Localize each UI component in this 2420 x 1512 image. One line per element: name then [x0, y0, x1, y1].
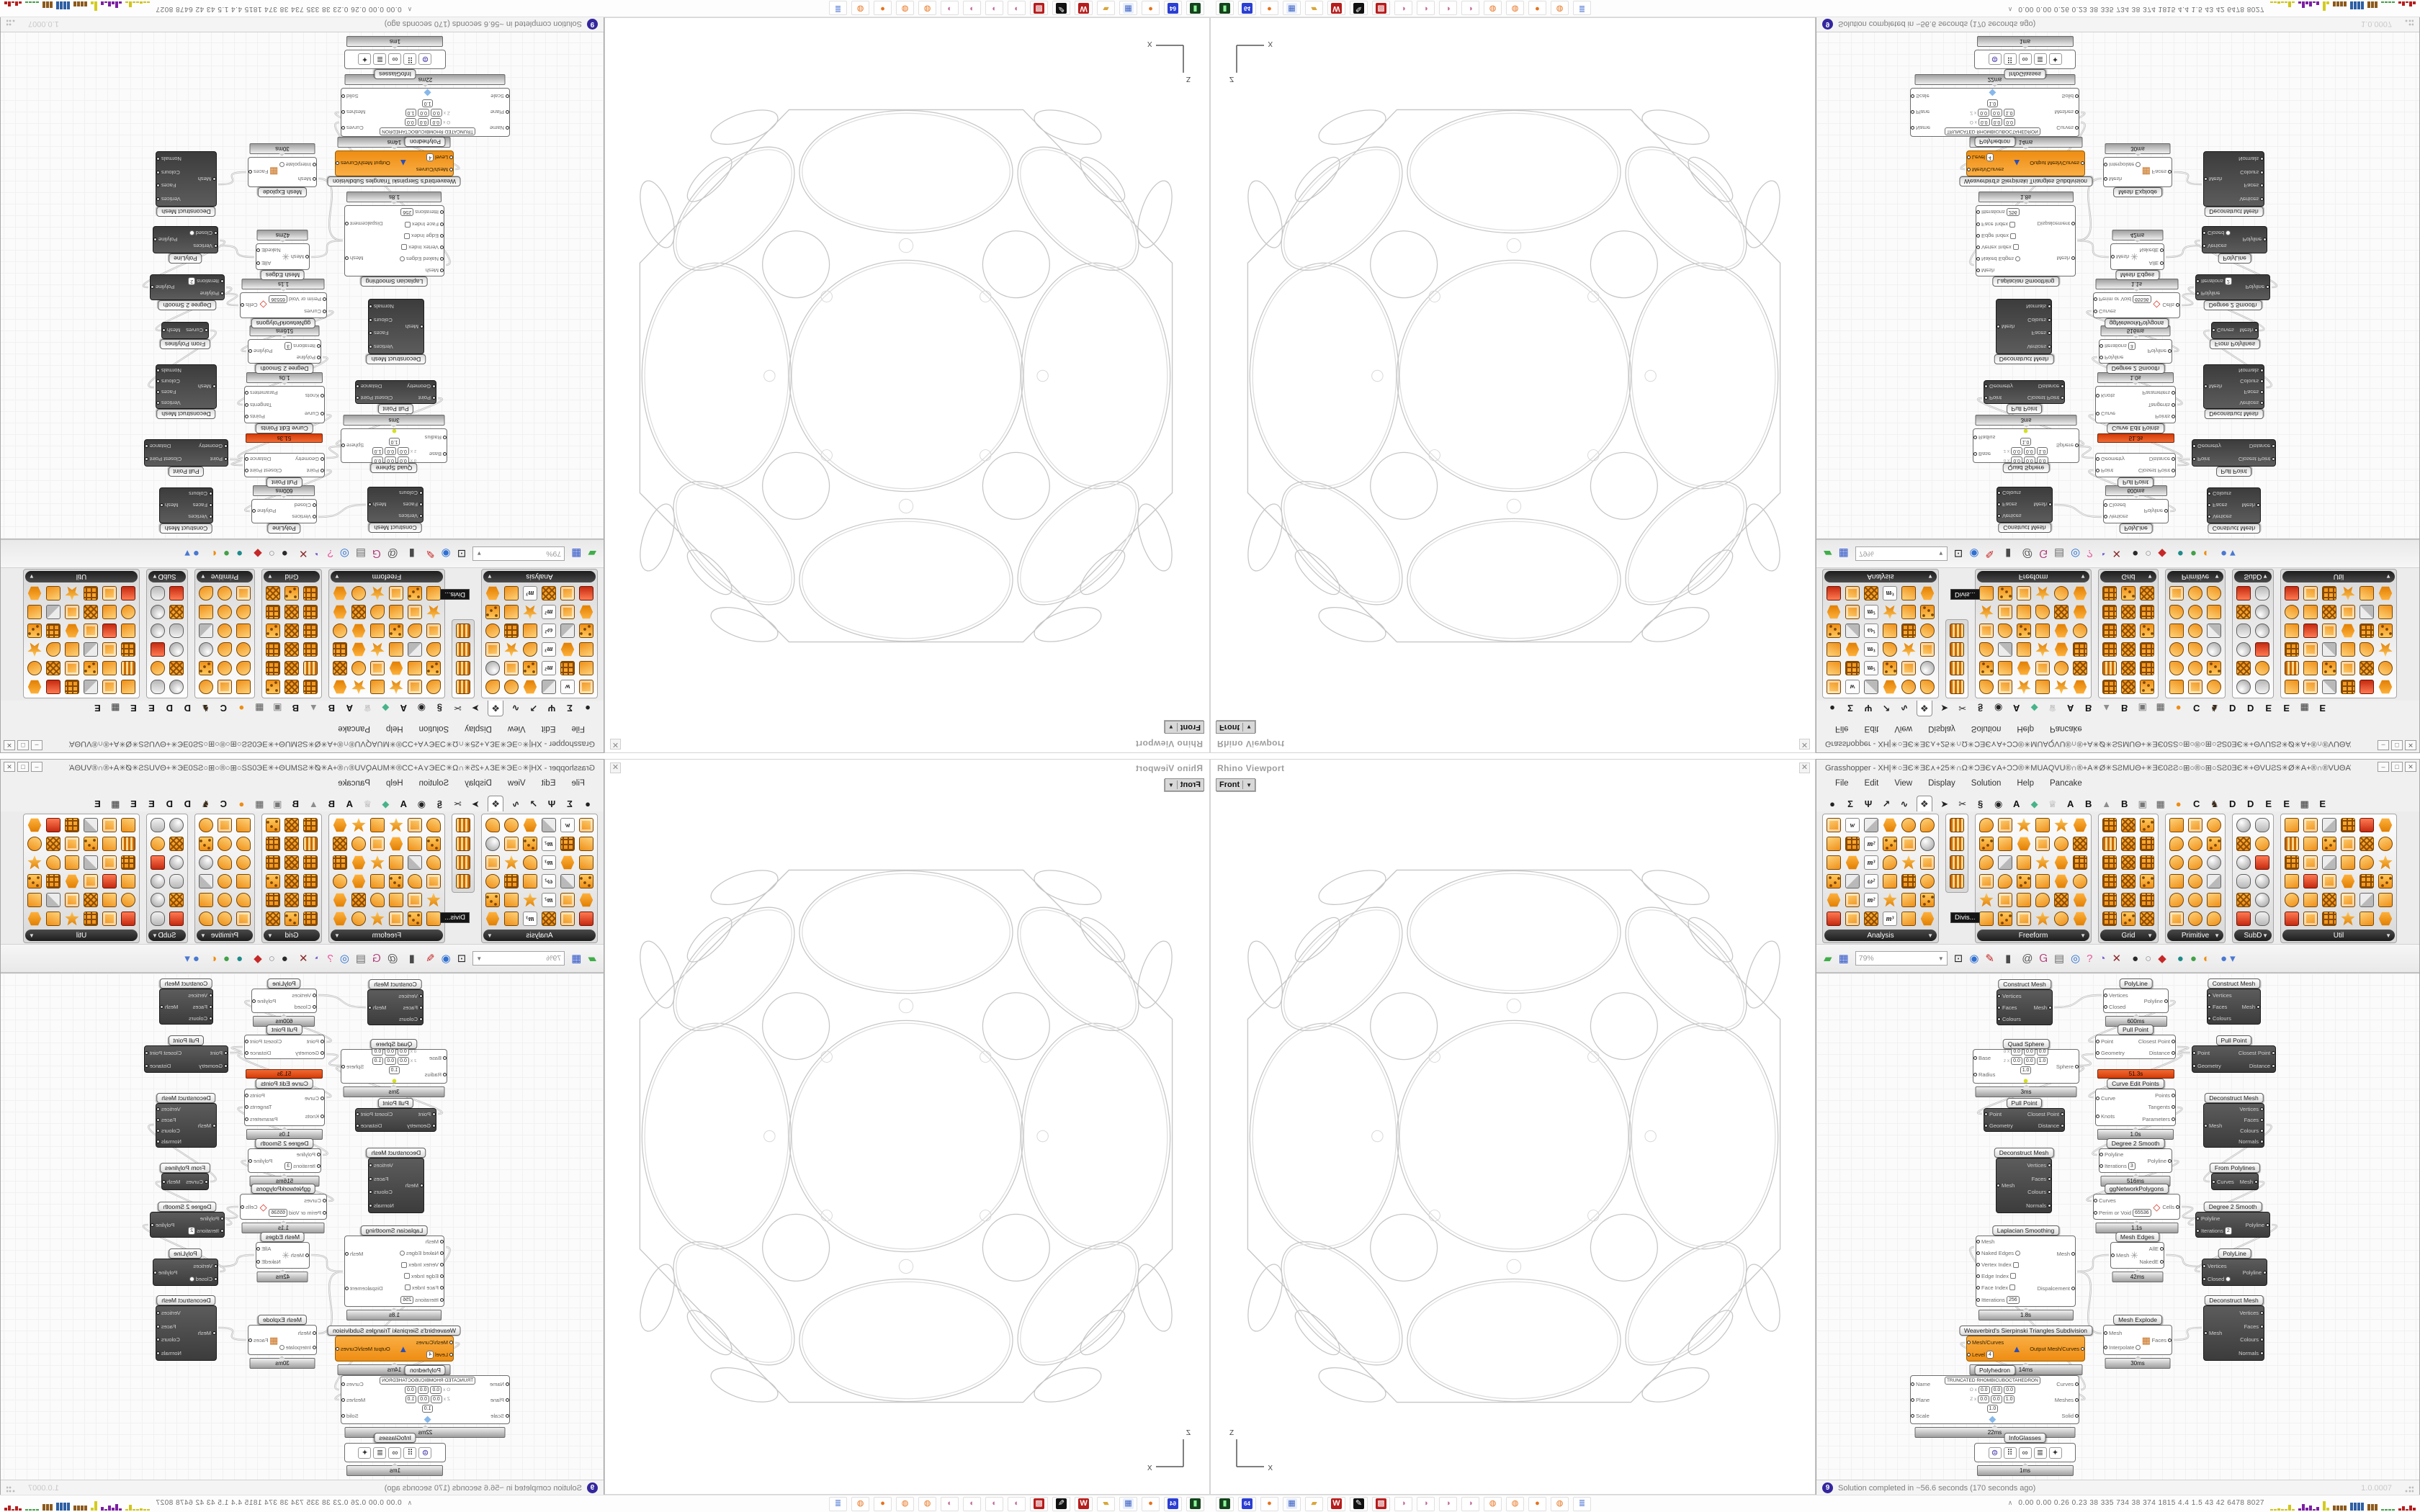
port-dot[interactable] — [369, 1204, 372, 1207]
value-box[interactable]: 0.0 — [2011, 447, 2022, 455]
palette-component-icon[interactable] — [577, 621, 596, 640]
port-dot[interactable] — [345, 1252, 349, 1256]
palette-component-icon[interactable] — [558, 853, 577, 872]
palette-component-icon[interactable] — [197, 621, 215, 640]
port-dot[interactable] — [1997, 492, 2001, 495]
port-dot[interactable] — [356, 396, 359, 400]
tab-11[interactable]: ◆ — [380, 702, 391, 714]
palette-component-icon[interactable] — [1918, 678, 1937, 696]
port-dot[interactable] — [2048, 305, 2051, 308]
document-icon[interactable]: ▤ — [2054, 549, 2064, 559]
palette-component-icon[interactable] — [2339, 909, 2357, 928]
port-dot[interactable] — [2048, 1006, 2052, 1009]
palette-component-icon[interactable] — [63, 621, 81, 640]
value-box[interactable]: 0.0 — [418, 109, 429, 117]
save-file-icon[interactable]: ▦ — [571, 549, 581, 559]
gh-node-polyhedron[interactable]: PolyhedronNamePlaneScaleTRUNCATED RHOMBI… — [341, 1375, 510, 1424]
paint-white-icon[interactable]: ○ — [269, 953, 275, 964]
port-dot[interactable] — [440, 1263, 444, 1266]
cluster-icon[interactable]: ▮ — [2005, 953, 2011, 964]
port-dot[interactable] — [156, 197, 160, 201]
port-dot[interactable] — [1997, 1017, 2001, 1021]
port-dot[interactable] — [205, 329, 208, 333]
port-dot[interactable] — [2172, 1105, 2175, 1109]
palette-component-icon[interactable] — [1996, 603, 2015, 621]
palette-component-icon[interactable] — [1824, 621, 1843, 640]
port-dot[interactable] — [212, 385, 216, 389]
port-dot[interactable] — [432, 1112, 436, 1116]
palette-component-icon[interactable] — [81, 891, 100, 909]
port-dot[interactable] — [2061, 1124, 2064, 1128]
palette-component-icon[interactable] — [2119, 816, 2138, 834]
palette-component-icon[interactable] — [2052, 584, 2071, 603]
palette-component-icon[interactable] — [2253, 659, 2272, 678]
tab-18[interactable]: ▦ — [254, 798, 265, 810]
palette-component-icon[interactable] — [387, 678, 405, 696]
port-dot[interactable] — [209, 492, 212, 496]
port-dot[interactable] — [432, 1124, 436, 1128]
port-dot[interactable] — [156, 1118, 160, 1122]
palette-component-icon[interactable] — [81, 659, 100, 678]
palette-component-icon[interactable] — [2071, 584, 2089, 603]
tab-17[interactable]: ▣ — [2137, 702, 2148, 714]
value-box[interactable]: 0.0 — [2004, 119, 2015, 127]
palette-component-icon[interactable] — [2167, 621, 2186, 640]
gh-node-mesh-explode[interactable]: Mesh ExplodeMeshInterpolate▦Faces30ms — [248, 157, 317, 187]
palette-component-icon[interactable] — [368, 909, 387, 928]
paint-teal-icon[interactable]: ● — [2177, 549, 2184, 559]
palette-component-icon[interactable] — [331, 584, 349, 603]
palette-component-icon[interactable] — [2253, 909, 2272, 928]
balloon-icon[interactable]: ◔ — [2099, 549, 2105, 559]
port-dot[interactable] — [2272, 458, 2275, 462]
palette-component-icon[interactable] — [119, 678, 138, 696]
taskbar-app-pen-tool[interactable]: ✎ — [1350, 1, 1368, 16]
palette-component-icon[interactable] — [2301, 816, 2320, 834]
port-dot[interactable] — [214, 232, 218, 235]
gh-node-quad-sphere[interactable]: Quad SphereBaseRadiuso x0.00.00.0z x0.00… — [341, 1049, 447, 1084]
palette-component-icon[interactable] — [387, 621, 405, 640]
port-dot[interactable] — [341, 1398, 345, 1402]
palette-component-icon[interactable] — [2052, 891, 2071, 909]
palette-component-icon[interactable] — [2071, 640, 2089, 659]
tab-2[interactable]: Ψ — [1863, 798, 1874, 810]
port-dot[interactable] — [1967, 168, 1971, 172]
palette-component-icon[interactable] — [2052, 834, 2071, 853]
palette-component-icon[interactable] — [197, 659, 215, 678]
port-dot[interactable] — [245, 1117, 248, 1121]
info-icon[interactable]: 9 — [587, 1482, 598, 1493]
palette-component-icon[interactable] — [25, 891, 44, 909]
palette-component-icon[interactable] — [521, 891, 539, 909]
taskbar-app-emulator[interactable]: ▮ — [1216, 1, 1234, 16]
palette-component-icon[interactable] — [2357, 891, 2376, 909]
cluster-icon[interactable]: ▮ — [409, 549, 415, 559]
port-dot[interactable] — [323, 1211, 326, 1215]
tab-1[interactable]: Σ — [1845, 798, 1856, 810]
tab-12[interactable]: ♕ — [2047, 702, 2058, 714]
palette-component-icon[interactable] — [81, 640, 100, 659]
port-dot[interactable] — [2272, 1064, 2275, 1068]
port-dot[interactable] — [449, 1341, 453, 1344]
name-value-box[interactable]: TRUNCATED RHOMBICUBOCTAHEDRON — [380, 128, 475, 136]
help-box-icon[interactable]: ? — [2087, 953, 2092, 964]
palette-component-icon[interactable] — [282, 584, 301, 603]
palette-section-label[interactable]: Util▼ — [2282, 571, 2395, 582]
port-dot[interactable] — [321, 1051, 324, 1055]
port-dot[interactable] — [2196, 1217, 2200, 1220]
palette-component-icon[interactable] — [2186, 853, 2205, 872]
tab-13[interactable]: A — [2065, 798, 2076, 810]
palette-component-icon[interactable] — [1977, 659, 1996, 678]
palette-component-icon[interactable] — [454, 853, 472, 872]
palette-component-icon[interactable] — [2234, 853, 2253, 872]
port-dot[interactable] — [443, 436, 447, 439]
palette-component-icon[interactable] — [387, 584, 405, 603]
palette-component-icon[interactable] — [215, 584, 234, 603]
help-box-icon[interactable]: ? — [328, 953, 333, 964]
port-dot[interactable] — [2099, 1164, 2103, 1168]
palette-component-icon[interactable] — [1977, 621, 1996, 640]
gh-node-from-polylines[interactable]: From PolylinesCurvesMesh — [161, 1173, 209, 1190]
port-dot[interactable] — [2266, 1223, 2269, 1227]
palette-component-icon[interactable] — [197, 640, 215, 659]
palette-component-icon[interactable] — [2234, 816, 2253, 834]
palette-component-icon[interactable] — [2339, 853, 2357, 872]
palette-component-icon[interactable] — [331, 909, 349, 928]
port-dot[interactable] — [2212, 1180, 2215, 1184]
paint-green-icon[interactable]: ● — [2190, 953, 2197, 964]
port-dot[interactable] — [1976, 246, 1980, 249]
palette-component-icon[interactable] — [2033, 834, 2052, 853]
port-dot[interactable] — [2104, 504, 2107, 508]
port-dot[interactable] — [1996, 325, 2000, 328]
port-dot[interactable] — [449, 156, 453, 160]
palette-component-icon[interactable] — [44, 640, 63, 659]
port-dot[interactable] — [419, 1006, 423, 1009]
palette-component-icon[interactable] — [2138, 621, 2156, 640]
port-dot[interactable] — [2048, 1204, 2051, 1207]
palette-component-icon[interactable] — [2205, 872, 2223, 891]
palette-component-icon[interactable] — [1996, 584, 2015, 603]
palette-component-icon[interactable] — [1843, 891, 1862, 909]
port-dot[interactable] — [1911, 1414, 1914, 1418]
palette-component-icon[interactable] — [148, 872, 167, 891]
name-value-box[interactable]: TRUNCATED RHOMBICUBOCTAHEDRON — [380, 1377, 475, 1385]
palette-component-icon[interactable] — [331, 816, 349, 834]
gh-node-degree-2-smooth-r[interactable]: Degree 2 SmoothPolylineIterations2Polyli… — [2195, 1212, 2270, 1238]
palette-component-icon[interactable] — [521, 678, 539, 696]
info-button-2[interactable]: ∞ — [2019, 54, 2032, 66]
taskbar-app-paint-palette-3[interactable]: ◑ — [963, 1, 981, 16]
close-icon[interactable]: ✕ — [2405, 740, 2416, 750]
toggle[interactable] — [2015, 256, 2020, 261]
palette-component-icon[interactable] — [25, 659, 44, 678]
palette-component-icon[interactable] — [2282, 659, 2301, 678]
tab-7[interactable]: ✂ — [1957, 702, 1968, 714]
taskbar-app-winamp[interactable]: W — [1075, 1, 1093, 16]
taskbar-app-notepad[interactable]: ≣ — [829, 1, 847, 16]
palette-component-icon[interactable] — [282, 678, 301, 696]
palette-component-icon[interactable] — [2138, 584, 2156, 603]
palette-component-icon[interactable] — [2282, 678, 2301, 696]
palette-component-icon[interactable] — [100, 659, 119, 678]
palette-component-icon[interactable] — [2301, 603, 2320, 621]
palette-component-icon[interactable] — [2100, 603, 2119, 621]
port-dot[interactable] — [2272, 1051, 2275, 1055]
palette-component-icon[interactable] — [405, 853, 424, 872]
menu-item-help[interactable]: Help — [386, 779, 403, 788]
port-dot[interactable] — [432, 384, 436, 388]
palette-component-icon[interactable] — [405, 659, 424, 678]
palette-component-icon[interactable] — [2376, 659, 2395, 678]
value-box[interactable]: 0.0 — [398, 447, 409, 455]
gh-node-ggnetworkpolygons[interactable]: ggNetworkPolygonsCurvesPerim or Void6553… — [2093, 292, 2180, 318]
port-dot[interactable] — [2260, 184, 2264, 187]
palette-component-icon[interactable]: m² — [539, 603, 558, 621]
port-dot[interactable] — [1911, 95, 1914, 99]
palette-component-icon[interactable] — [25, 872, 44, 891]
port-dot[interactable] — [2196, 280, 2200, 284]
port-dot[interactable] — [156, 369, 160, 372]
port-dot[interactable] — [212, 177, 216, 181]
value-box[interactable]: 0.0 — [431, 1395, 442, 1403]
sketch-icon[interactable]: ✎ — [1985, 953, 1994, 964]
port-dot[interactable] — [2204, 177, 2208, 181]
info-icon[interactable]: 9 — [1822, 19, 1833, 30]
gh-titlebar[interactable]: Grasshopper - XH|✳○ƎЄ✳ƎƐ⋏+25✳∩Ω✳ƆƎЄ⋎A+ƆƆ… — [1816, 760, 2419, 775]
palette-section-label[interactable]: Util▼ — [25, 930, 138, 941]
palette-component-icon[interactable] — [301, 834, 320, 853]
wire-display-icon[interactable]: ✕ — [2112, 549, 2122, 559]
palette-component-icon[interactable] — [264, 816, 282, 834]
palette-component-icon[interactable] — [1843, 909, 1862, 928]
port-dot[interactable] — [2254, 1180, 2258, 1184]
gh-node-construct-mesh-r[interactable]: Construct MeshVerticesFacesColoursMesh — [2207, 989, 2261, 1025]
value-box[interactable]: 65536 — [269, 1209, 287, 1217]
palette-component-icon[interactable] — [1918, 891, 1937, 909]
port-dot[interactable] — [220, 1229, 224, 1233]
port-dot[interactable] — [2192, 445, 2196, 449]
palette-component-icon[interactable] — [215, 640, 234, 659]
port-dot[interactable] — [2208, 1017, 2211, 1020]
port-dot[interactable] — [2204, 1124, 2208, 1128]
paint-orange-icon[interactable]: ◐ — [210, 953, 217, 964]
palette-component-icon[interactable] — [2071, 891, 2089, 909]
port-dot[interactable] — [2260, 157, 2264, 161]
value-box[interactable]: 2 — [188, 1227, 195, 1235]
port-dot[interactable] — [2260, 379, 2264, 383]
palette-component-icon[interactable] — [2015, 621, 2033, 640]
toggle[interactable] — [2226, 1277, 2231, 1282]
taskbar-app-commodore-64[interactable]: 64 — [1238, 1, 1256, 16]
palette-component-icon[interactable] — [1862, 584, 1881, 603]
port-dot[interactable] — [2192, 1064, 2196, 1068]
tab-5-selected[interactable]: ❖ — [1917, 700, 1932, 716]
palette-component-icon[interactable] — [2282, 640, 2301, 659]
palette-component-icon[interactable] — [2071, 872, 2089, 891]
balloon-icon[interactable]: ◔ — [314, 953, 321, 964]
palette-component-icon[interactable] — [521, 853, 539, 872]
checkbox[interactable] — [401, 1262, 407, 1268]
palette-component-icon[interactable] — [558, 640, 577, 659]
toggle[interactable] — [2015, 1251, 2020, 1256]
port-dot[interactable] — [1996, 1184, 2000, 1187]
palette-component-icon[interactable] — [234, 640, 253, 659]
port-dot[interactable] — [440, 1251, 444, 1255]
gh-node-curve-edit-points[interactable]: Curve Edit PointsCurveKnotsPointsTangent… — [2095, 1089, 2176, 1126]
palette-component-icon[interactable] — [577, 659, 596, 678]
finder-icon[interactable]: ◎ — [340, 953, 349, 964]
port-dot[interactable] — [220, 1217, 224, 1220]
port-dot[interactable] — [2212, 329, 2215, 333]
port-dot[interactable] — [341, 444, 345, 448]
tab-9[interactable]: ◉ — [1993, 702, 2004, 714]
sketch-icon[interactable]: ✎ — [426, 549, 435, 559]
palette-component-icon[interactable] — [282, 891, 301, 909]
palette-component-icon[interactable] — [368, 834, 387, 853]
palette-component-icon[interactable] — [167, 909, 186, 928]
palette-component-icon[interactable] — [2376, 891, 2395, 909]
gh-node-pull-point-c[interactable]: Pull PointPointGeometryClosest PointDist… — [244, 1035, 325, 1059]
checkbox[interactable] — [2013, 1262, 2019, 1268]
palette-component-icon[interactable] — [331, 891, 349, 909]
port-dot[interactable] — [2202, 1264, 2206, 1268]
palette-component-icon[interactable] — [25, 584, 44, 603]
palette-component-icon[interactable] — [2376, 909, 2395, 928]
cluster-icon[interactable]: ▮ — [409, 953, 415, 964]
info-button-1[interactable]: ⠿ — [404, 1447, 417, 1459]
info-button-0[interactable]: ⊜ — [1989, 1447, 2002, 1459]
port-dot[interactable] — [443, 1073, 447, 1076]
name-value-box[interactable]: TRUNCATED RHOMBICUBOCTAHEDRON — [1945, 128, 2040, 136]
port-dot[interactable] — [2104, 1005, 2107, 1009]
palette-component-icon[interactable] — [44, 891, 63, 909]
port-dot[interactable] — [245, 1040, 248, 1043]
palette-component-icon[interactable] — [1824, 909, 1843, 928]
menu-item-pancake[interactable]: Pancake — [338, 779, 370, 788]
palette-component-icon[interactable] — [2186, 640, 2205, 659]
value-box[interactable]: 0.0 — [431, 109, 442, 117]
palette-component-icon[interactable] — [1918, 909, 1937, 928]
palette-component-icon[interactable] — [2119, 659, 2138, 678]
palette-component-icon[interactable] — [2301, 659, 2320, 678]
port-dot[interactable] — [313, 163, 316, 167]
palette-component-icon[interactable] — [167, 834, 186, 853]
palette-component-icon[interactable] — [2186, 909, 2205, 928]
port-dot[interactable] — [245, 469, 248, 473]
tab-1[interactable]: Σ — [1845, 702, 1856, 714]
document-icon[interactable]: ▤ — [2054, 953, 2064, 964]
gh-node-quad-sphere[interactable]: Quad SphereBaseRadiuso x0.00.00.0z x0.00… — [1973, 428, 2079, 463]
palette-component-icon[interactable] — [405, 640, 424, 659]
port-dot[interactable] — [2260, 390, 2264, 394]
palette-component-icon[interactable] — [2376, 603, 2395, 621]
gh-node-pull-point-l[interactable]: Pull PointPointGeometryClosest PointDist… — [355, 1108, 436, 1132]
paint-orange-icon[interactable]: ◐ — [2203, 549, 2210, 559]
info-button-2[interactable]: ∞ — [389, 1447, 402, 1459]
document-icon[interactable]: ▤ — [356, 549, 366, 559]
palette-component-icon[interactable] — [63, 659, 81, 678]
taskbar-app-blender-3[interactable]: ◍ — [1551, 1, 1569, 16]
palette-component-icon[interactable] — [2376, 853, 2395, 872]
taskbar-app-firefox[interactable]: ● — [1260, 1, 1278, 16]
palette-component-icon[interactable] — [63, 872, 81, 891]
tab-14[interactable]: B — [326, 702, 337, 714]
palette-component-icon[interactable] — [349, 584, 368, 603]
port-dot[interactable] — [1984, 1124, 1988, 1128]
taskbar-app-commodore-64[interactable]: 64 — [1238, 1497, 1256, 1511]
value-box[interactable]: 0.0 — [405, 1386, 416, 1394]
port-dot[interactable] — [248, 171, 252, 174]
palette-component-icon[interactable] — [2138, 853, 2156, 872]
gh-node-polyline-r[interactable]: PolyLineVerticesClosedPolyline — [153, 1259, 218, 1286]
port-dot[interactable] — [245, 415, 248, 418]
value-box[interactable]: 1.0 — [2004, 1395, 2015, 1403]
palette-component-icon[interactable] — [2376, 678, 2395, 696]
value-box[interactable]: 0.0 — [2024, 1057, 2035, 1065]
palette-component-icon[interactable] — [2339, 891, 2357, 909]
port-dot[interactable] — [369, 1177, 372, 1181]
palette-component-icon[interactable] — [100, 584, 119, 603]
gh-node-degree-2-smooth-c[interactable]: Degree 2 SmoothPolylineIterations3Polyli… — [248, 1148, 321, 1173]
palette-component-icon[interactable] — [282, 659, 301, 678]
close-icon[interactable]: ✕ — [1799, 739, 1810, 750]
port-dot[interactable] — [419, 515, 423, 518]
port-dot[interactable] — [1976, 1274, 1980, 1278]
port-dot[interactable] — [1997, 515, 2001, 518]
palette-component-icon[interactable] — [1948, 678, 1966, 696]
port-dot[interactable] — [151, 286, 154, 289]
palette-component-icon[interactable] — [264, 659, 282, 678]
taskbar-app-folder[interactable]: ▰ — [1097, 1, 1115, 16]
port-dot[interactable] — [443, 1056, 447, 1060]
palette-component-icon[interactable] — [119, 640, 138, 659]
value-box[interactable]: 1.0 — [422, 100, 434, 108]
palette-component-icon[interactable] — [301, 621, 320, 640]
port-dot[interactable] — [1973, 436, 1977, 439]
palette-component-icon[interactable] — [2253, 816, 2272, 834]
palette-component-icon[interactable] — [2071, 678, 2089, 696]
viewport-mode-dropdown[interactable]: Front ▼ — [1216, 778, 1255, 791]
port-dot[interactable] — [1973, 1073, 1977, 1076]
paint-teal-icon[interactable]: ● — [2177, 953, 2184, 964]
taskbar-app-commodore-64[interactable]: 64 — [1164, 1, 1182, 16]
paint-blue-icon[interactable]: ● ▾ — [2220, 953, 2236, 964]
gh-node-pull-point-c[interactable]: Pull PointPointGeometryClosest PointDist… — [2095, 453, 2176, 477]
gh-node-wb-sierpinski[interactable]: Weaverbird's Sierpinski Triangles Subdiv… — [335, 1336, 454, 1362]
gh-node-wb-sierpinski[interactable]: Weaverbird's Sierpinski Triangles Subdiv… — [335, 150, 454, 176]
palette-component-icon[interactable] — [100, 640, 119, 659]
taskbar-app-notepad[interactable]: ≣ — [829, 1497, 847, 1511]
value-box[interactable]: 0.0 — [1978, 119, 1990, 127]
port-dot[interactable] — [449, 168, 453, 172]
tab-8[interactable]: § — [434, 702, 445, 714]
palette-component-icon[interactable] — [197, 853, 215, 872]
checkbox[interactable] — [404, 233, 410, 239]
gh-node-degree-2-smooth-r[interactable]: Degree 2 SmoothPolylineIterations2Polyli… — [2195, 274, 2270, 300]
palette-component-icon[interactable] — [2320, 640, 2339, 659]
palette-component-icon[interactable] — [2339, 834, 2357, 853]
palette-component-icon[interactable] — [521, 834, 539, 853]
palette-component-icon[interactable] — [349, 659, 368, 678]
palette-component-icon[interactable] — [2186, 816, 2205, 834]
gha-icon[interactable]: Ꮐ — [2039, 953, 2047, 964]
tab-25[interactable]: E — [2281, 798, 2293, 810]
tab-20[interactable]: C — [2191, 798, 2202, 810]
port-dot[interactable] — [1976, 1286, 1980, 1290]
port-dot[interactable] — [252, 510, 256, 513]
